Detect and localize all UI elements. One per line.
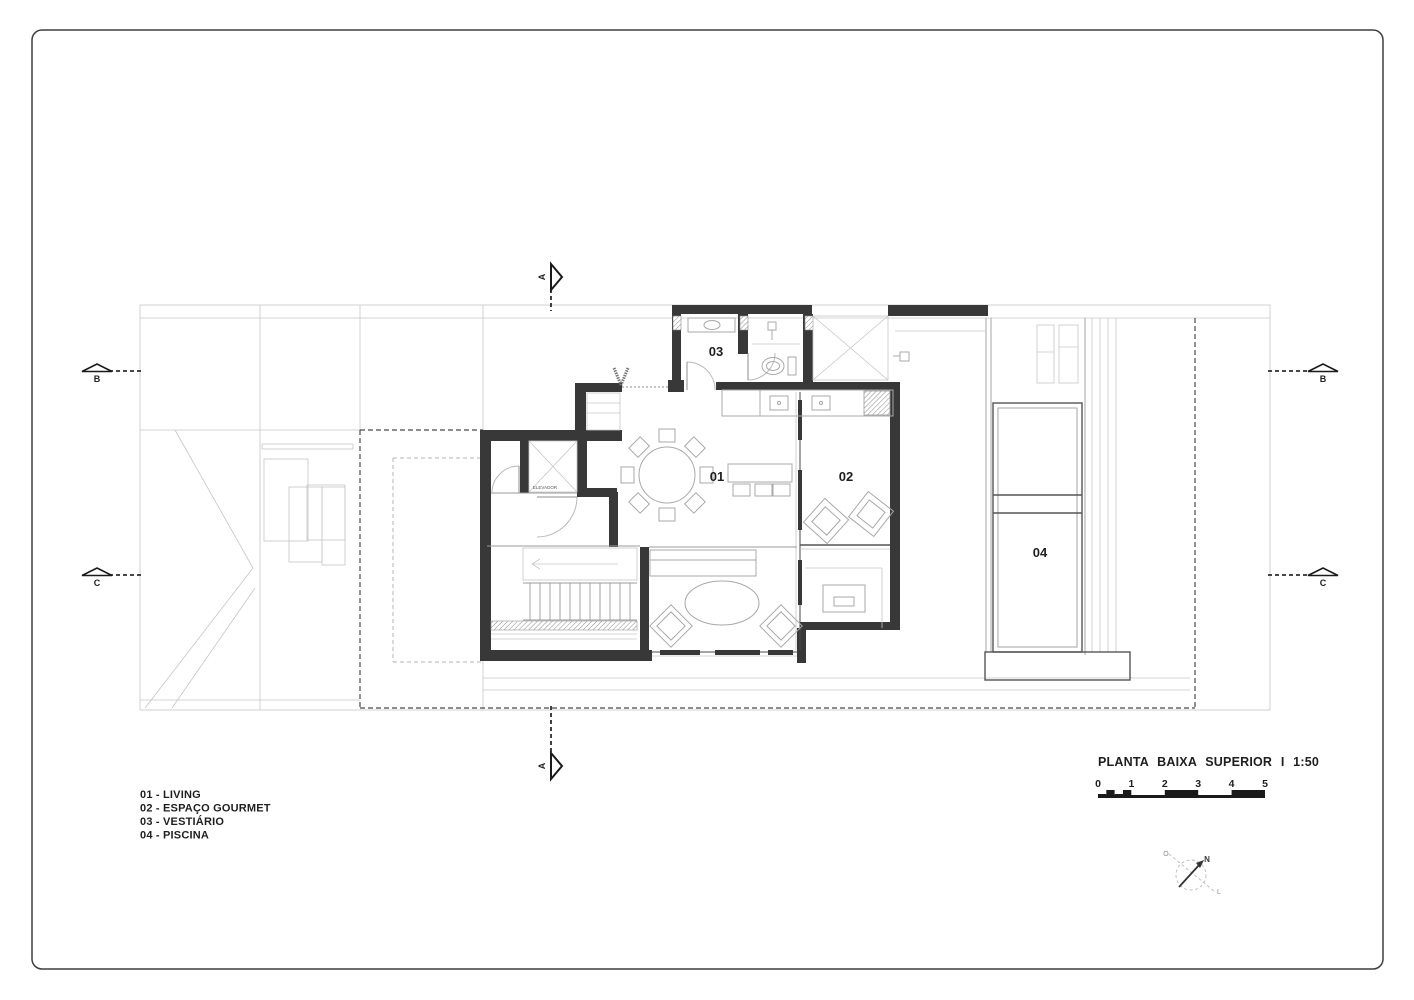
scale-tick-4: 4 bbox=[1229, 778, 1235, 790]
lower-floor-roof bbox=[145, 430, 353, 708]
section-b-flag-left bbox=[82, 364, 112, 372]
dining-table bbox=[621, 429, 713, 521]
glazing bbox=[487, 318, 991, 656]
room-label-piscina: 04 bbox=[1033, 545, 1048, 560]
door-arcs bbox=[492, 353, 775, 537]
scale-tick-3: 3 bbox=[1195, 778, 1201, 790]
pivot-door-symbol bbox=[614, 368, 668, 387]
section-a-flag-bottom bbox=[551, 753, 562, 779]
legend-item-gourmet: 02 - ESPAÇO GOURMET bbox=[140, 803, 271, 815]
floor-plan-canvas: ELEVADOR bbox=[0, 0, 1414, 1000]
compass-east-label: L bbox=[1217, 889, 1221, 896]
scale-tick-0: 0 bbox=[1095, 778, 1101, 790]
scale-tick-5: 5 bbox=[1262, 778, 1268, 790]
scale-tick-2: 2 bbox=[1162, 778, 1168, 790]
kitchen-island bbox=[728, 464, 792, 496]
section-c-flag-left bbox=[82, 568, 112, 576]
closet bbox=[587, 393, 620, 430]
section-markers: A A B B C C bbox=[82, 264, 1338, 779]
room-label-gourmet: 02 bbox=[839, 469, 853, 484]
section-c-label-left: C bbox=[94, 578, 101, 588]
drawing-sheet: ELEVADOR bbox=[0, 0, 1414, 1000]
drawing-title: PLANTA BAIXA SUPERIOR I 1:50 bbox=[1098, 755, 1319, 769]
section-c-flag-right bbox=[1308, 568, 1338, 576]
section-b-label-left: B bbox=[94, 374, 101, 384]
scale-tick-1: 1 bbox=[1128, 778, 1134, 790]
title-block: PLANTA BAIXA SUPERIOR I 1:50 0 1 2 3 4 5 bbox=[1095, 755, 1319, 798]
room-label-vestiario: 03 bbox=[709, 344, 723, 359]
section-b-label-right: B bbox=[1320, 374, 1327, 384]
stairs bbox=[491, 548, 637, 639]
section-b-flag-right bbox=[1308, 364, 1338, 372]
north-arrow bbox=[1179, 864, 1200, 887]
section-a-label-bottom: A bbox=[537, 762, 547, 769]
legend: 01 - LIVING 02 - ESPAÇO GOURMET 03 - VES… bbox=[140, 789, 271, 842]
section-c-label-right: C bbox=[1320, 578, 1327, 588]
north-compass: O N L bbox=[1163, 851, 1221, 896]
kitchen-counter bbox=[722, 390, 893, 416]
compass-north-label: N bbox=[1204, 855, 1210, 864]
legend-item-vestiario: 03 - VESTIÁRIO bbox=[140, 815, 224, 828]
elevator-label: ELEVADOR bbox=[533, 485, 558, 490]
elevator: ELEVADOR bbox=[529, 441, 577, 492]
scale-bar: 0 1 2 3 4 5 bbox=[1095, 778, 1268, 798]
legend-item-piscina: 04 - PISCINA bbox=[140, 830, 209, 842]
section-a-flag-top bbox=[551, 264, 562, 290]
room-labels: 01 02 03 04 bbox=[709, 344, 1048, 560]
compass-west-label: O bbox=[1163, 851, 1169, 858]
section-a-label-top: A bbox=[537, 273, 547, 280]
gourmet-furniture bbox=[803, 492, 893, 628]
sheet-border bbox=[32, 30, 1383, 969]
legend-item-living: 01 - LIVING bbox=[140, 789, 201, 801]
site-lines bbox=[140, 305, 1270, 710]
room-label-living: 01 bbox=[710, 469, 724, 484]
void-x bbox=[813, 316, 888, 380]
lounge-furniture bbox=[650, 550, 802, 647]
